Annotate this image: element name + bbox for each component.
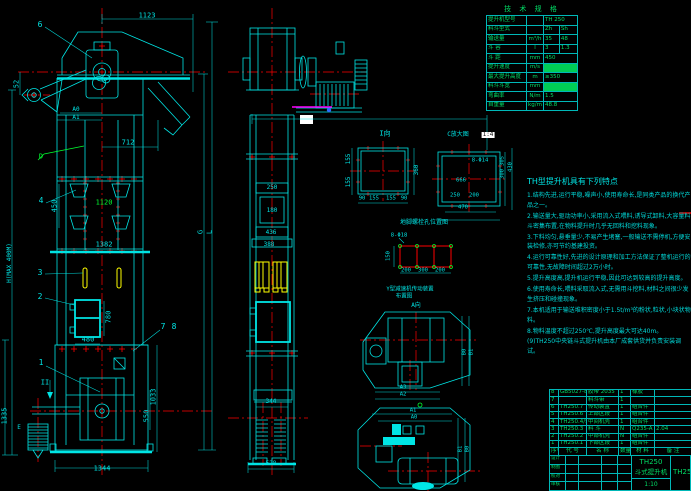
- spec-row: 最大提升高度m≥350: [487, 73, 578, 83]
- dim-l: L: [207, 230, 214, 234]
- bom-cell: 胶带 2035: [587, 390, 619, 397]
- layout-top-a2: A2: [400, 392, 407, 398]
- anchor-hole: 8-Φ18: [391, 233, 408, 239]
- spec-row: 料斗型式ZhSh: [487, 25, 578, 35]
- spec-cell: 3: [544, 44, 560, 54]
- spec-cell: 最大提升高度: [487, 73, 527, 83]
- dim-boot-inner: 550: [144, 410, 151, 423]
- bom-cell: N: [619, 433, 631, 440]
- bom-cell: 1: [619, 397, 631, 404]
- signature-cell: [618, 482, 631, 490]
- detail-c-hole: 8-Φ14: [472, 158, 489, 164]
- blue-grip-dot: [327, 108, 331, 112]
- dim-a0: A0: [72, 107, 79, 113]
- spec-cell: 250: [544, 82, 578, 92]
- note-line: 3.下料均匀,悬垂量少,不易产生堵塞,一般输送不需停机,方便安装检修,亦可节约基…: [527, 233, 691, 253]
- bom-cell: 2: [550, 433, 559, 440]
- bom-cell: TH250.2: [559, 433, 587, 440]
- bom-cell: 8: [550, 390, 559, 397]
- spec-row: 自重量kg/m48.8: [487, 101, 578, 111]
- detail-i-b2: 155: [369, 196, 379, 202]
- dim-side-2: 180: [267, 208, 278, 214]
- title-block: 设计制图校对审核 TH250 斗式提升机 1:10 TH250: [549, 455, 691, 491]
- bom-row: 5TH250.6上部区段1组合件: [550, 411, 691, 418]
- signature-cell: [579, 474, 603, 482]
- bom-cell: 1: [550, 441, 559, 448]
- detail-c-title: C放大图: [447, 132, 469, 138]
- layout-bottom-a1: A1: [410, 408, 417, 414]
- bom-cell: [655, 397, 691, 404]
- bom-cell: 料斗带: [587, 397, 619, 404]
- spec-cell: 48.8: [544, 101, 578, 111]
- balloon-6: 6: [38, 21, 43, 29]
- signature-label: 制图: [550, 465, 566, 473]
- anchor-b2: 300: [418, 268, 428, 274]
- spec-cell: N/m: [527, 92, 544, 102]
- bom-cell: 橡胶: [631, 390, 655, 397]
- spec-cell: 48: [559, 35, 577, 45]
- spec-cell: 1.4: [544, 63, 578, 73]
- elevator-geometry: [22, 28, 500, 488]
- spec-cell: 弯曲率: [487, 92, 527, 102]
- bom-cell: TH250.1: [559, 441, 587, 448]
- signature-row: 校对: [550, 474, 631, 483]
- anchor-bolt-holes: [399, 245, 453, 269]
- dim-mid-green: 1120: [96, 200, 113, 207]
- note-line: 4.运行可靠性好,先进的设计原理和加工方法保证了整机运行的可靠性,无故障时间超过…: [527, 253, 691, 273]
- dim-side-1: 250: [267, 185, 278, 191]
- bom-row: 2TH250.2中部机壳N组合件: [550, 433, 691, 440]
- dim-pitch: 450: [52, 200, 59, 213]
- signature-label: 审核: [550, 482, 566, 490]
- balloon-7: 7: [161, 323, 166, 331]
- bom-row: 1TH250.1下部区段1组合件: [550, 441, 691, 448]
- layout-bottom-b0: B0: [465, 446, 471, 453]
- anchor-b1: 200: [401, 268, 411, 274]
- bom-cell: 上部区段: [587, 411, 619, 418]
- spec-cell: l: [527, 44, 544, 54]
- signature-cell: [602, 474, 617, 482]
- spec-row: 提升速度m/s1.4: [487, 63, 578, 73]
- detail-c-r2: 300: [500, 169, 506, 179]
- signature-label: 设计: [550, 456, 566, 464]
- bom-cell: 组合件: [631, 433, 655, 440]
- signature-row: 审核: [550, 482, 631, 490]
- note-line: 8.物料温度不超过250℃,提升高度最大可达40m。: [527, 327, 691, 337]
- bom-cell: TH250.6: [559, 411, 587, 418]
- dim-a1: A1: [72, 115, 79, 121]
- bom-cell: [655, 419, 691, 426]
- spec-cell: 料斗斗宽: [487, 82, 527, 92]
- spec-cell: [527, 25, 544, 35]
- spec-cell: Sh: [559, 25, 577, 35]
- layout-top-title: Y型减速机传动装置: [386, 287, 433, 293]
- detail-c-r1: 305: [500, 156, 506, 166]
- bom-cell: [631, 397, 655, 404]
- spec-cell: 斗 距: [487, 54, 527, 64]
- signature-grid: 设计制图校对审核: [550, 456, 632, 490]
- bom-cell: [559, 397, 587, 404]
- signature-row: 设计: [550, 456, 631, 465]
- bom-cell: [655, 411, 691, 418]
- dim-side-4: 388: [264, 242, 275, 248]
- bom-cell: 4: [550, 419, 559, 426]
- spec-cell: 35: [544, 35, 560, 45]
- bom-cell: 2.04: [655, 426, 691, 433]
- spec-row: 弯曲率N/m1.5: [487, 92, 578, 102]
- drawing-scale: 1:10: [632, 478, 670, 490]
- bom-cell: 料 斗: [587, 426, 619, 433]
- dim-side-base: 528: [266, 461, 277, 467]
- bom-cell: 组合件: [631, 419, 655, 426]
- signature-cell: [566, 482, 578, 490]
- bom-cell: 7: [550, 397, 559, 404]
- selected-dim-blob: [300, 115, 313, 124]
- dim-side-3: 436: [266, 230, 277, 236]
- note-line: 7.本机适用于输送堆积密度小于1.5t/m³的粉状,粒状,小块状物料。: [527, 306, 691, 326]
- bom-cell: TH250.7: [559, 404, 587, 411]
- dim-height: H(MAX 400M): [7, 243, 13, 283]
- dim-g: G: [198, 230, 205, 234]
- spec-cell: 1.3: [559, 44, 577, 54]
- section-marker: II: [41, 380, 49, 387]
- layout-top-b1: B1: [469, 349, 475, 356]
- spec-cell: TH 250: [544, 16, 578, 26]
- detail-i-b3: 155: [386, 196, 396, 202]
- dim-flange: 1382: [96, 242, 113, 249]
- view-label-d: D: [39, 154, 43, 161]
- spec-cell: 输送量: [487, 35, 527, 45]
- detail-i-title: I向: [379, 131, 390, 138]
- bom-cell: 中部机壳: [587, 433, 619, 440]
- detail-c-b1: 250: [450, 193, 460, 199]
- bom-cell: [655, 404, 691, 411]
- bom-cell: 1: [619, 419, 631, 426]
- drawing-number: TH250: [671, 456, 690, 490]
- signature-cell: [566, 456, 578, 464]
- centerlines: [18, 8, 506, 491]
- anchor-h: 150: [386, 251, 392, 261]
- dim-base: 1344: [94, 466, 111, 473]
- layout-top-subtitle: 布置图: [396, 294, 413, 300]
- spec-row: 斗 距mm450: [487, 54, 578, 64]
- dim-left-small: 52: [14, 80, 21, 88]
- title-name-cell: TH250 斗式提升机 1:10: [632, 456, 671, 490]
- bom-table: 8GB5027-86胶带 20351橡胶7料斗带16TH250.7传动装置1组合…: [549, 389, 691, 456]
- note-line: 2.输送量大,驱动功率小,采用流入式喂料,诱导式卸料,大容量料斗密集布置,在物料…: [527, 212, 691, 232]
- view-label-e: E: [17, 425, 21, 431]
- bom-cell: 组合件: [631, 441, 655, 448]
- balloon-4: 4: [39, 197, 44, 205]
- bom-cell: [655, 441, 691, 448]
- bom-cell: 组合件: [631, 411, 655, 418]
- dim-left-boot: 1335: [2, 408, 9, 425]
- dim-side-mid: 344: [266, 399, 277, 405]
- bom-row: 4TH250.4/5中间机壳1组合件: [550, 419, 691, 426]
- layout-top-a3: A3: [400, 385, 407, 391]
- signature-cell: [618, 465, 631, 473]
- bom-row: 3TH250.3料 斗NQ235-A2.04: [550, 426, 691, 433]
- bom-cell: TH250.3: [559, 426, 587, 433]
- dim-door-h: 780: [106, 311, 113, 324]
- bom-cell: 1: [619, 411, 631, 418]
- signature-cell: [566, 474, 578, 482]
- spec-cell: mm: [527, 54, 544, 64]
- bom-cell: 中间机壳: [587, 419, 619, 426]
- bom-cell: [655, 433, 691, 440]
- signature-label: 校对: [550, 474, 566, 482]
- balloon-3: 3: [38, 269, 43, 277]
- spec-cell: 1.5: [544, 92, 578, 102]
- spec-cell: 自重量: [487, 101, 527, 111]
- spec-row: 料斗斗宽mm250: [487, 82, 578, 92]
- detail-c-r3: 430: [508, 162, 514, 172]
- signature-cell: [566, 465, 578, 473]
- spec-cell: m: [527, 73, 544, 83]
- detail-i-b1: 90: [359, 196, 366, 202]
- bom-cell: 5: [550, 411, 559, 418]
- bom-row: 8GB5027-86胶带 20351橡胶: [550, 390, 691, 397]
- spec-cell: 斗 容: [487, 44, 527, 54]
- layout-bottom-a0: A0: [411, 415, 418, 421]
- signature-cell: [618, 456, 631, 464]
- signature-cell: [602, 465, 617, 473]
- detail-i-b4: 90: [401, 196, 408, 202]
- detail-i-left1: 155: [346, 154, 352, 165]
- bom-row: 7料斗带1: [550, 397, 691, 404]
- anchor-bolt-grid: [400, 246, 451, 267]
- bom-cell: 1: [619, 404, 631, 411]
- detail-i-right: 360: [414, 165, 420, 176]
- detail-c-b2: 200: [469, 193, 479, 199]
- layout-top-b0: B0: [462, 349, 468, 356]
- spec-cell: 提升速度: [487, 63, 527, 73]
- layout-bottom-b1: B1: [458, 446, 464, 453]
- balloon-8: 8: [172, 323, 177, 331]
- detail-i-left2: 155: [346, 177, 352, 188]
- section-arrow: [47, 392, 53, 399]
- detail-c-inner: 666: [456, 178, 466, 184]
- anchor-title: 地脚螺栓孔位置图: [400, 220, 448, 226]
- spec-cell: ≥350: [544, 73, 578, 83]
- spec-row: 斗 容l31.3: [487, 44, 578, 54]
- spec-cell: [527, 16, 544, 26]
- signature-cell: [579, 456, 603, 464]
- dim-boot-h: 1033: [151, 389, 158, 406]
- dim-top-width: 1123: [139, 13, 156, 20]
- notes-block: TH型提升机具有下列特点 1.结构先进,运行平稳,噪声小,使用寿命长,是同类产品…: [527, 176, 691, 358]
- note-line: 1.结构先进,运行平稳,噪声小,使用寿命长,是同类产品的换代产品之一。: [527, 191, 691, 211]
- bom-cell: 3: [550, 426, 559, 433]
- spec-cell: m/s: [527, 63, 544, 73]
- drawing-name: 斗式提升机: [632, 466, 670, 476]
- balloon-2: 2: [38, 293, 43, 301]
- note-line: 6.使用寿命长,喂料采取流入式,无需用斗挖料,材料之间很少发生挤压和碰撞现象。: [527, 285, 691, 305]
- spec-cell: 提升机型号: [487, 16, 527, 26]
- spec-row: 提升机型号TH 250: [487, 16, 578, 26]
- bom-cell: 1: [619, 441, 631, 448]
- bom-cell: 6: [550, 404, 559, 411]
- signature-cell: [579, 482, 603, 490]
- signature-cell: [602, 482, 617, 490]
- bom-cell: 传动装置: [587, 404, 619, 411]
- bom-row: 6TH250.7传动装置1组合件: [550, 404, 691, 411]
- spec-cell: 450: [544, 54, 578, 64]
- detail-c-b3: 470: [458, 205, 468, 211]
- dim-chute: 712: [122, 140, 135, 147]
- bom-cell: [655, 390, 691, 397]
- bom-cell: Q235-A: [631, 426, 655, 433]
- bom-cell: 下部区段: [587, 441, 619, 448]
- balloon-1: 1: [39, 359, 44, 367]
- bom-cell: N: [619, 426, 631, 433]
- spec-cell: kg/m: [527, 101, 544, 111]
- bom-cell: 组合件: [631, 404, 655, 411]
- spec-row: 输送量m³/h3548: [487, 35, 578, 45]
- bom-cell: GB5027-86: [559, 390, 587, 397]
- signature-cell: [618, 474, 631, 482]
- layout-top-view: A向: [411, 303, 421, 309]
- spec-table-title: 技 术 规 格: [486, 4, 578, 14]
- spec-table: 技 术 规 格 提升机型号TH 250料斗型式ZhSh输送量m³/h3548斗 …: [486, 4, 578, 111]
- anchor-b3: 200: [435, 268, 445, 274]
- bom-cell: 1: [619, 390, 631, 397]
- dimension-lines: [2, 14, 512, 482]
- notes-title: TH型提升机具有下列特点: [527, 176, 691, 187]
- bom-cell: TH250.4/5: [559, 419, 587, 426]
- note-line: (9)TH250中央链斗式提升机由本厂成套供货并负责安装调试。: [527, 337, 691, 357]
- note-line: 5.提升高度高,提升机运行平稳,因此可达到较高的提升高度。: [527, 274, 691, 284]
- signature-cell: [602, 456, 617, 464]
- signature-cell: [579, 465, 603, 473]
- detail-c-scale: 1:4: [482, 132, 495, 138]
- door-tabs: [70, 304, 256, 336]
- signature-row: 制图: [550, 465, 631, 474]
- spec-cell: 料斗型式: [487, 25, 527, 35]
- spec-cell: Zh: [544, 25, 560, 35]
- spec-cell: mm: [527, 82, 544, 92]
- drawing-model: TH250: [632, 458, 670, 466]
- dim-door-w: 480: [82, 337, 95, 344]
- green-leader: [38, 146, 422, 407]
- spec-cell: m³/h: [527, 35, 544, 45]
- cad-canvas[interactable]: 1123 52 A0 A1 712 D 6 G L H(MAX 400M) 4 …: [0, 0, 691, 491]
